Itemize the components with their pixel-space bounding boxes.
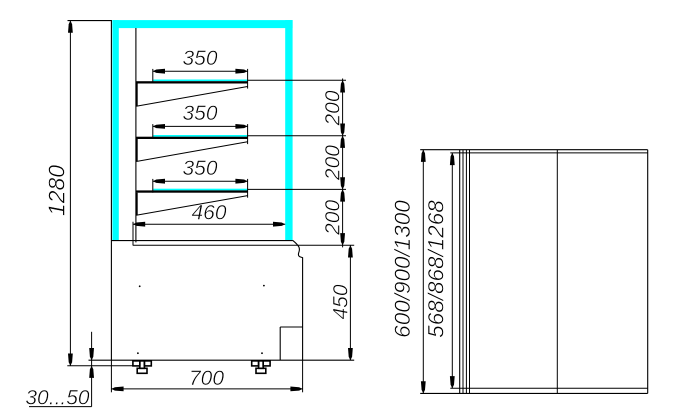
svg-text:600/900/1300: 600/900/1300 — [390, 200, 415, 338]
svg-text:200: 200 — [322, 90, 345, 126]
svg-text:1280: 1280 — [44, 165, 70, 216]
svg-text:700: 700 — [189, 367, 224, 390]
svg-text:350: 350 — [182, 157, 217, 180]
svg-text:350: 350 — [182, 102, 217, 125]
svg-text:460: 460 — [191, 201, 226, 224]
svg-text:200: 200 — [322, 200, 345, 236]
svg-text:30...50: 30...50 — [25, 386, 90, 409]
svg-text:200: 200 — [322, 145, 345, 181]
svg-text:568/868/1268: 568/868/1268 — [424, 200, 449, 338]
svg-text:350: 350 — [182, 47, 217, 70]
svg-text:450: 450 — [329, 284, 352, 319]
